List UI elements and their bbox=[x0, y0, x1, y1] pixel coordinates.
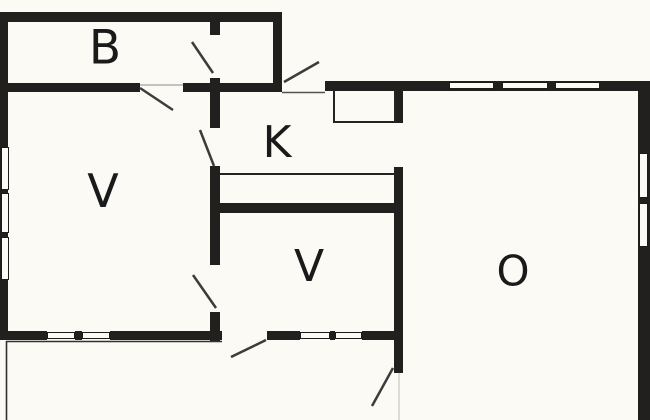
room-label-v-upper: V bbox=[87, 168, 118, 214]
door-swing-v-v bbox=[193, 275, 216, 308]
door-swing-b-hall bbox=[192, 42, 213, 73]
floor-plan: B K V V O TE bbox=[0, 0, 650, 420]
door-swing-terrace-o bbox=[372, 368, 393, 406]
door-swing-entrance bbox=[284, 62, 319, 82]
room-label-b: B bbox=[89, 25, 121, 72]
room-label-k: K bbox=[263, 121, 292, 165]
door-swing-v-terrace bbox=[231, 340, 266, 357]
room-label-o: O bbox=[496, 250, 529, 292]
door-swing-v-k bbox=[200, 130, 214, 166]
room-label-v-lower: V bbox=[294, 245, 324, 289]
door-swing-hall-v bbox=[140, 88, 173, 110]
